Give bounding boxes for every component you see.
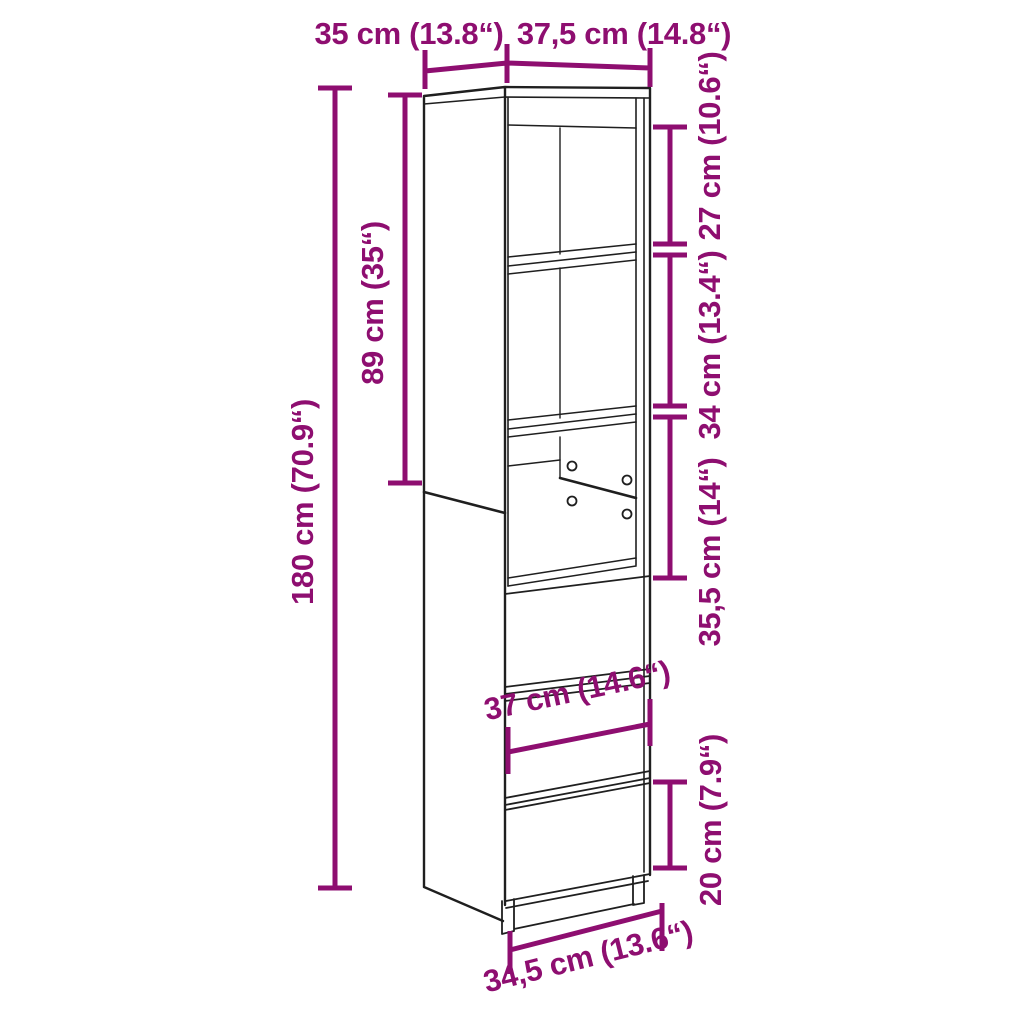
shelf-2 — [508, 406, 636, 437]
dimension-lines — [318, 44, 687, 974]
dim-label-compartment-3: 35,5 cm (14“) — [692, 457, 727, 646]
screw-hole — [623, 510, 632, 519]
dimension-diagram: 35 cm (13.8“) 37,5 cm (14.8“) 89 cm (35“… — [0, 0, 1024, 1024]
diagram-canvas: 35 cm (13.8“) 37,5 cm (14.8“) 89 cm (35“… — [0, 0, 1024, 1024]
dim-label-upper-height: 89 cm (35“) — [355, 221, 390, 385]
dim-label-compartment-2: 34 cm (13.4“) — [692, 250, 727, 439]
dim-label-base-width: 34,5 cm (13.6“) — [480, 914, 696, 1000]
side-panel-joint-line — [424, 492, 505, 513]
top-rail — [508, 125, 636, 128]
screw-holes — [568, 462, 632, 519]
dim-label-drawer-height: 20 cm (7.9“) — [693, 734, 728, 906]
shelf-1 — [508, 244, 636, 274]
back-panel-seam-left — [508, 460, 560, 466]
screw-hole — [623, 476, 632, 485]
dim-label-width: 37,5 cm (14.8“) — [517, 16, 731, 51]
dim-line-upper-height — [388, 95, 422, 483]
top-board-underside — [424, 97, 650, 104]
cabinet-outline — [424, 87, 650, 921]
dim-line-total-height — [318, 88, 352, 888]
screw-hole — [568, 462, 577, 471]
open-section-bottom-board — [508, 558, 636, 586]
dim-label-total-height: 180 cm (70.9“) — [285, 399, 320, 605]
dim-label-depth: 35 cm (13.8“) — [314, 16, 503, 51]
dim-line-compartments — [653, 127, 687, 578]
dim-label-compartment-1: 27 cm (10.6“) — [692, 51, 727, 240]
cabinet-drawing — [424, 87, 650, 934]
screw-hole — [568, 497, 577, 506]
dim-line-drawer-height — [653, 782, 687, 868]
